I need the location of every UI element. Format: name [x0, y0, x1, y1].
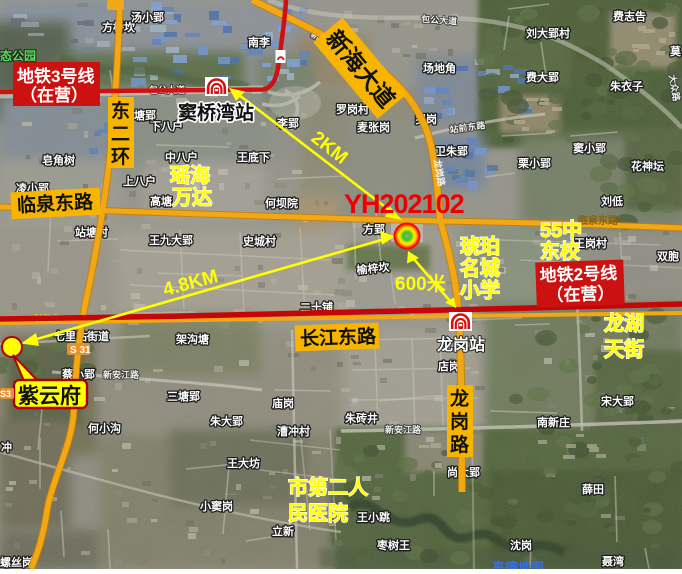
svg-text:枣树王: 枣树王: [376, 538, 410, 552]
svg-text:万达: 万达: [171, 186, 212, 209]
svg-text:皂角树: 皂角树: [42, 153, 75, 167]
svg-text:市第二人: 市第二人: [288, 475, 369, 499]
svg-text:王大坊: 王大坊: [227, 456, 260, 470]
svg-text:场地角: 场地角: [423, 61, 456, 75]
svg-text:新安江路: 新安江路: [385, 424, 422, 435]
svg-text:立新: 立新: [272, 524, 294, 538]
svg-text:中八户: 中八户: [165, 150, 198, 164]
svg-text:二: 二: [111, 124, 130, 145]
svg-text:卫朱郢: 卫朱郢: [435, 144, 468, 158]
svg-text:临泉东路: 临泉东路: [578, 214, 619, 227]
svg-text:费大郢: 费大郢: [526, 70, 559, 84]
svg-text:岗: 岗: [450, 411, 469, 433]
svg-text:紫云府: 紫云府: [18, 384, 81, 408]
svg-text:罗岗村: 罗岗村: [336, 102, 369, 116]
svg-text:何坝院: 何坝院: [265, 196, 298, 210]
svg-text:薛田: 薛田: [582, 482, 604, 496]
svg-text:塘郢: 塘郢: [134, 108, 156, 122]
svg-text:（在营）: （在营）: [546, 283, 615, 305]
svg-text:地铁2号线: 地铁2号线: [539, 263, 617, 286]
svg-text:高塘: 高塘: [150, 194, 172, 208]
svg-text:天街: 天街: [604, 337, 644, 361]
svg-text:龙岗站: 龙岗站: [436, 335, 485, 354]
svg-text:东: 东: [111, 99, 130, 122]
svg-text:55中: 55中: [540, 218, 582, 242]
svg-text:长江东路: 长江东路: [300, 325, 378, 351]
svg-text:600米: 600米: [395, 272, 447, 295]
svg-text:王底下: 王底下: [237, 150, 270, 164]
svg-text:王九大郢: 王九大郢: [149, 233, 193, 247]
svg-text:上八户: 上八户: [123, 174, 156, 188]
svg-text:麦张岗: 麦张岗: [357, 120, 390, 134]
svg-text:朱大郢: 朱大郢: [209, 414, 243, 428]
svg-text:朱砖井: 朱砖井: [344, 411, 378, 425]
svg-text:琥珀: 琥珀: [460, 234, 500, 258]
svg-text:小学: 小学: [460, 278, 500, 302]
svg-text:宋大郢: 宋大郢: [600, 394, 634, 408]
svg-text:何小沟: 何小沟: [88, 421, 121, 435]
svg-text:刘大郢村: 刘大郢村: [526, 26, 570, 40]
svg-text:民医院: 民医院: [288, 501, 348, 525]
svg-text:瑶海: 瑶海: [170, 163, 210, 187]
svg-text:窦小郢: 窦小郢: [573, 141, 606, 155]
svg-text:沈岗: 沈岗: [510, 538, 532, 552]
svg-text:双胞: 双胞: [657, 249, 679, 263]
svg-text:路: 路: [450, 433, 470, 456]
svg-text:龙湖: 龙湖: [604, 311, 644, 335]
svg-text:栗小郢: 栗小郢: [518, 156, 551, 170]
svg-text:地铁3号线: 地铁3号线: [17, 66, 94, 86]
svg-text:南李: 南李: [248, 35, 271, 49]
svg-text:费志告: 费志告: [613, 9, 646, 23]
svg-text:S3: S3: [0, 389, 11, 399]
svg-text:窦桥湾站: 窦桥湾站: [178, 101, 254, 124]
svg-text:冲: 冲: [1, 440, 12, 454]
svg-text:李郢: 李郢: [276, 116, 299, 130]
svg-text:小窦岗: 小窦岗: [199, 499, 233, 513]
svg-text:三塘郢: 三塘郢: [167, 389, 200, 403]
svg-text:花神坛: 花神坛: [631, 159, 664, 173]
svg-text:架沟塘: 架沟塘: [175, 332, 209, 346]
svg-text:庙岗: 庙岗: [272, 396, 294, 410]
svg-text:史城村: 史城村: [243, 234, 276, 248]
svg-text:南新庄: 南新庄: [537, 415, 570, 429]
svg-text:王小跳: 王小跳: [357, 510, 390, 524]
svg-text:（在营）: （在营）: [20, 85, 88, 105]
svg-text:环: 环: [111, 147, 130, 168]
svg-text:汤小郢: 汤小郢: [131, 10, 164, 24]
svg-text:聂湾: 聂湾: [601, 554, 624, 568]
svg-text:龙: 龙: [450, 387, 469, 410]
svg-text:态公园: 态公园: [0, 48, 36, 63]
svg-text:YH202102: YH202102: [344, 189, 464, 219]
svg-text:高德地图: 高德地图: [492, 560, 544, 569]
svg-text:朱衣子: 朱衣子: [609, 79, 643, 93]
svg-text:S 31: S 31: [70, 345, 91, 356]
svg-text:新安江路: 新安江路: [103, 369, 140, 380]
svg-text:名城: 名城: [460, 256, 500, 280]
svg-text:漕冲村: 漕冲村: [277, 424, 310, 438]
svg-text:莫: 莫: [669, 44, 682, 58]
svg-text:刘低: 刘低: [601, 194, 623, 208]
svg-text:东校: 东校: [540, 239, 581, 263]
